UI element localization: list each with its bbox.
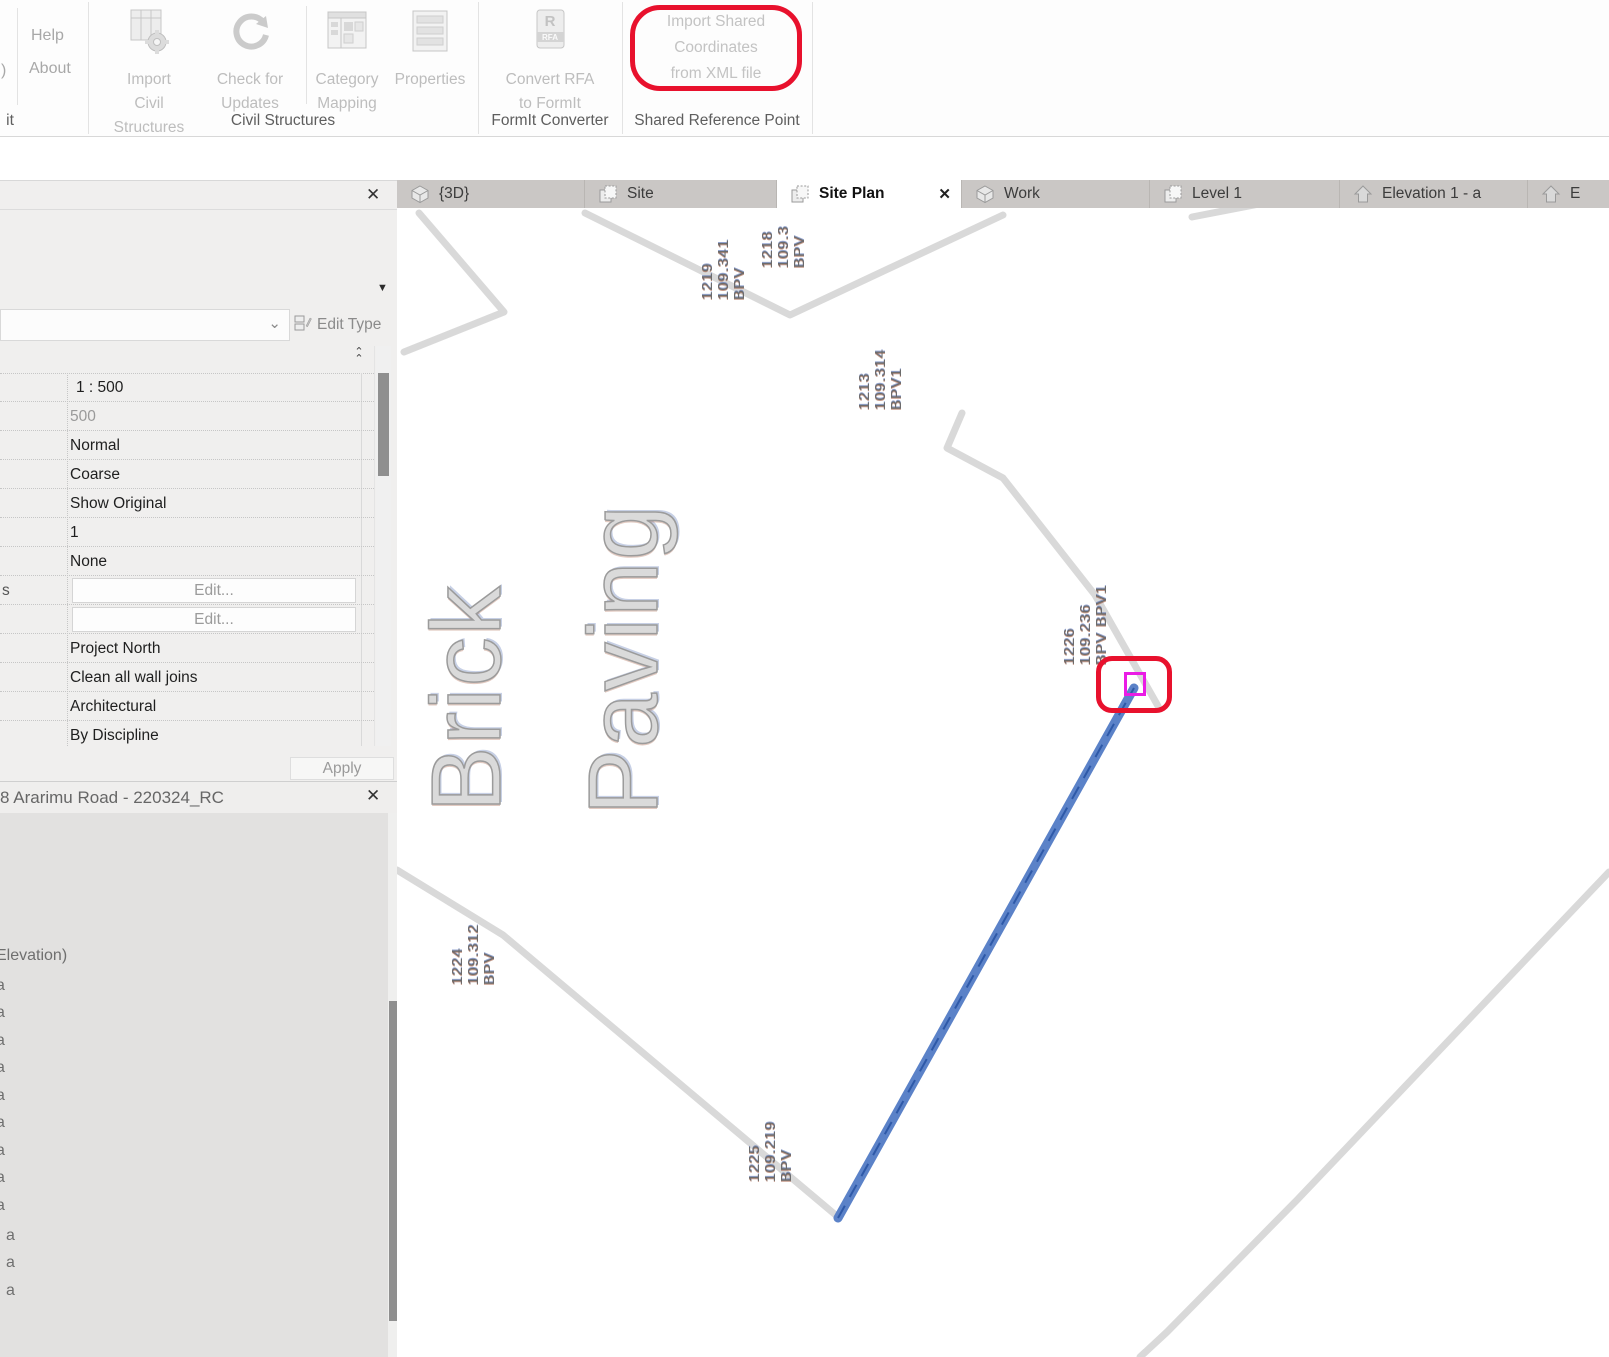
property-row[interactable]: 1 : 500 (0, 373, 374, 402)
close-icon[interactable]: ✕ (366, 786, 380, 806)
category-mapping-button[interactable]: Category Mapping (308, 8, 386, 116)
tab-work[interactable]: Work (962, 180, 1150, 208)
button-label: Coordinates (674, 39, 758, 56)
survey-point-label: 1224109.312BPV (450, 924, 498, 985)
import-civil-structures-icon (98, 8, 200, 66)
project-browser-title: 8 Ararimu Road - 220324_RC (0, 782, 224, 814)
import-shared-coordinates-button[interactable]: Import Shared Coordinates from XML file (632, 9, 800, 87)
survey-point-label: 1219109.341BPV (700, 239, 748, 300)
help-button[interactable]: Help (31, 27, 64, 45)
rfa-file-icon: R RFA (486, 8, 614, 66)
plan-view-icon (1162, 184, 1183, 205)
ribbon-group-formit-converter: FormIt Converter (478, 112, 622, 130)
svg-text:R: R (545, 13, 556, 30)
chevron-down-icon[interactable]: ⌄ (268, 314, 281, 332)
tab-clipped[interactable]: E (1528, 180, 1609, 208)
button-label: Updates (221, 95, 279, 112)
clipped-property-label: s (2, 576, 10, 605)
project-browser-header: 8 Ararimu Road - 220324_RC ✕ (0, 781, 397, 813)
property-row[interactable]: Show Original (0, 489, 374, 518)
tree-item[interactable]: a (6, 1253, 15, 1273)
drawing-canvas[interactable]: Brick Paving 1219109.341BPV 1218109.3BPV… (397, 208, 1609, 1357)
button-label: to FormIt (519, 95, 581, 112)
survey-point-label: 1225109.219BPV (747, 1121, 795, 1182)
about-button[interactable]: About (29, 60, 71, 78)
property-row[interactable]: By Discipline (0, 721, 374, 746)
tab-label: Site (627, 185, 654, 203)
button-label: Import Shared (667, 13, 765, 30)
property-row[interactable]: Project North (0, 634, 374, 663)
apply-row: Apply (0, 746, 397, 781)
property-row: Edit... (0, 576, 374, 605)
category-mapping-icon (308, 8, 386, 66)
survey-point-label: 1226109.236BPV BPV1 (1062, 584, 1110, 665)
type-selector[interactable]: ▼ (0, 209, 397, 301)
tab-label: Site Plan (819, 185, 884, 203)
tab-label: Work (1004, 185, 1040, 203)
property-row[interactable]: Clean all wall joins (0, 663, 374, 692)
search-combo[interactable]: ⌄ (0, 309, 290, 341)
ribbon-divider (17, 8, 18, 105)
tab-label: {3D} (439, 185, 469, 203)
tree-section-label: Elevation) (0, 946, 67, 966)
property-row[interactable]: None (0, 547, 374, 576)
property-row: Edit... (0, 605, 374, 634)
revit-window: ) Help About it Import Civil Structures (0, 0, 1609, 1357)
tree-item[interactable]: a (6, 1226, 15, 1246)
ribbon-group-clipped: it (0, 112, 20, 130)
tree-item[interactable]: a (0, 1196, 5, 1216)
browser-scrollbar[interactable] (388, 813, 397, 1357)
properties-palette: ✕ ▼ ⌄ Edit Type ⌃⌃ 1 : 5 (0, 180, 397, 1357)
site-text-paving: Paving (574, 503, 672, 815)
edit-button[interactable]: Edit... (72, 607, 356, 632)
project-browser-tree: Elevation) a a a a a a a a a a a a (0, 813, 397, 1357)
properties-grid: ⌃⌃ 1 : 500 500 Normal Coarse Show Origin… (0, 346, 397, 746)
button-label: Mapping (317, 95, 376, 112)
tab-level-1[interactable]: Level 1 (1150, 180, 1340, 208)
view-tab-bar: {3D} Site Site Plan ✕ Work Level 1 (397, 180, 1609, 208)
clipped-button-label: ) (1, 62, 6, 80)
survey-point-label: 1213109.314BPV1 (857, 349, 905, 410)
ribbon-group-shared-reference-point: Shared Reference Point (622, 112, 812, 130)
ribbon-panel-border (812, 2, 813, 134)
edit-type-label: Edit Type (317, 316, 381, 334)
tree-item[interactable]: a (0, 1086, 5, 1106)
collapse-caret-icon[interactable]: ⌃⌃ (352, 349, 366, 363)
tree-item[interactable]: a (0, 1058, 5, 1078)
tree-item[interactable]: a (0, 1168, 5, 1188)
button-label: from XML file (671, 65, 762, 82)
scrollbar-thumb[interactable] (378, 373, 389, 476)
button-label: Check for (217, 71, 283, 88)
ribbon: ) Help About it Import Civil Structures (0, 0, 1609, 137)
selected-point-marker[interactable] (1124, 672, 1146, 696)
tree-item[interactable]: a (0, 1113, 5, 1133)
button-label: Import (127, 71, 171, 88)
button-label: Category (316, 71, 379, 88)
properties-button[interactable]: Properties (388, 8, 472, 92)
edit-type-button[interactable]: Edit Type (294, 311, 396, 339)
ribbon-group-civil-structures: Civil Structures (88, 112, 478, 130)
tree-item[interactable]: a (6, 1281, 15, 1301)
property-row[interactable]: 500 (0, 402, 374, 431)
survey-point-label: 1218109.3BPV (760, 225, 808, 268)
refresh-icon (200, 8, 300, 66)
property-row[interactable]: Coarse (0, 460, 374, 489)
scrollbar-thumb[interactable] (389, 1001, 397, 1321)
ribbon-divider (306, 6, 307, 104)
button-label: Convert RFA (506, 71, 595, 88)
button-label: Properties (395, 71, 466, 88)
edit-button[interactable]: Edit... (72, 578, 356, 603)
plan-view-icon (597, 184, 618, 205)
properties-icon (388, 8, 472, 66)
properties-scrollbar[interactable] (376, 346, 391, 746)
elevation-view-icon (1352, 184, 1373, 205)
tree-item[interactable]: a (0, 976, 5, 996)
convert-rfa-to-formit-button[interactable]: R RFA Convert RFA to FormIt (486, 8, 614, 116)
tab-3d[interactable]: {3D} (397, 180, 585, 208)
grid-right-border (374, 346, 375, 746)
tab-site[interactable]: Site (585, 180, 777, 208)
tab-label: Level 1 (1192, 185, 1242, 203)
tab-elevation-1-a[interactable]: Elevation 1 - a (1340, 180, 1528, 208)
tab-label: E (1570, 185, 1580, 203)
close-icon[interactable]: ✕ (366, 185, 380, 205)
tab-label: Elevation 1 - a (1382, 185, 1481, 203)
plan-view-icon (789, 184, 810, 205)
property-row[interactable]: 1 (0, 518, 374, 547)
site-text-brick: Brick (417, 584, 515, 812)
svg-text:RFA: RFA (542, 33, 558, 42)
property-row[interactable]: Architectural (0, 692, 374, 721)
close-icon[interactable]: ✕ (938, 185, 951, 203)
edit-type-icon (294, 315, 312, 336)
tree-item[interactable]: a (0, 1141, 5, 1161)
tree-item[interactable]: a (0, 1031, 5, 1051)
dropdown-arrow-icon[interactable]: ▼ (377, 282, 388, 294)
check-for-updates-button[interactable]: Check for Updates (200, 8, 300, 116)
apply-button[interactable]: Apply (290, 757, 394, 780)
tree-item[interactable]: a (0, 1003, 5, 1023)
property-row[interactable]: Normal (0, 431, 374, 460)
elevation-view-icon (1540, 184, 1561, 205)
view-3d-icon (974, 184, 995, 205)
tab-site-plan[interactable]: Site Plan ✕ (777, 180, 962, 208)
view-3d-icon (409, 184, 430, 205)
